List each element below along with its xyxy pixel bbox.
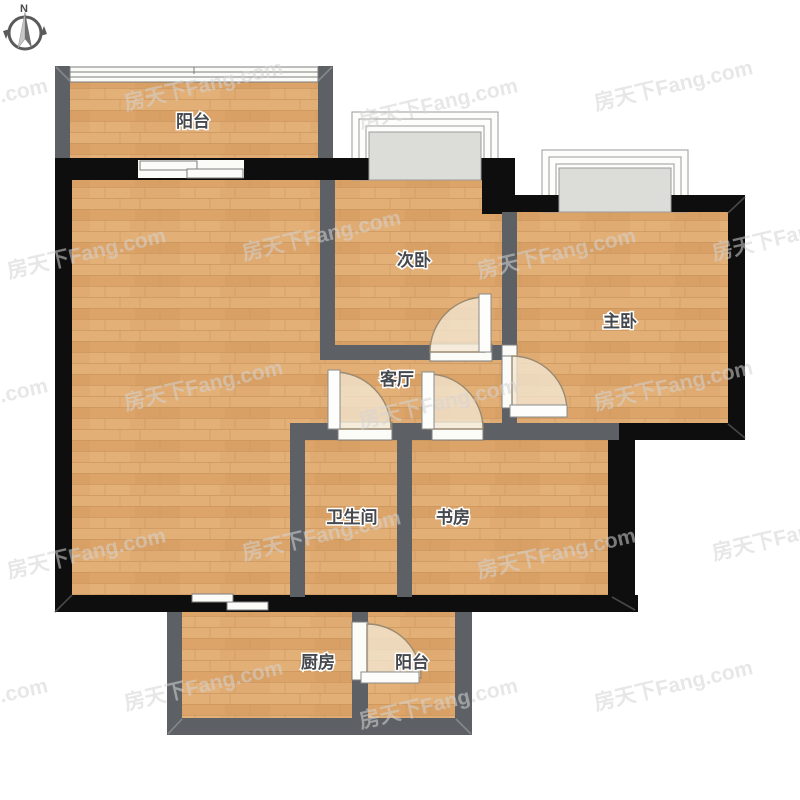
- door-leaf: [361, 672, 419, 683]
- room-label-balcony-top: 阳台: [176, 111, 210, 131]
- bay-window-panel: [559, 168, 671, 212]
- floorplan-canvas: 房天下Fang.com房天下Fang.com房天下Fang.com房天下Fang…: [0, 0, 800, 800]
- wall-segment: [617, 423, 745, 440]
- wall-segment: [167, 718, 472, 735]
- floorplan-page: 房天下Fang.com房天下Fang.com房天下Fang.com房天下Fang…: [0, 0, 800, 800]
- compass-north-label: N: [20, 3, 28, 15]
- sliding-window-panel: [192, 594, 233, 602]
- wall-segment: [502, 212, 517, 358]
- sliding-door-panel: [187, 169, 243, 178]
- sliding-window-panel: [227, 602, 268, 610]
- room-label-study: 书房: [436, 507, 470, 527]
- door-opening: [352, 622, 368, 680]
- watermark-text: 房天下Fang.com: [0, 373, 50, 433]
- wall-segment: [608, 423, 635, 612]
- wall-segment: [55, 158, 72, 612]
- door-leaf: [510, 405, 567, 417]
- room-label-balcony-bottom: 阳台: [395, 652, 429, 672]
- room-label-secondary-bedroom: 次卧: [397, 250, 431, 270]
- watermark-text: 房天下Fang.com: [710, 505, 800, 565]
- wall-segment: [502, 423, 619, 440]
- room-label-living-room: 客厅: [379, 369, 414, 389]
- door-leaf: [328, 370, 340, 429]
- room-label-master-bedroom: 主卧: [603, 311, 637, 331]
- compass: N: [3, 3, 47, 49]
- watermark-text: 房天下Fang.com: [0, 73, 50, 133]
- watermark-text: 房天下Fang.com: [592, 655, 755, 715]
- wall-segment: [55, 595, 638, 612]
- room-label-bathroom: 卫生间: [327, 507, 378, 527]
- watermark-text: 房天下Fang.com: [592, 55, 755, 115]
- wall-segment: [320, 180, 335, 360]
- wall-segment: [290, 423, 305, 597]
- wall-segment: [728, 195, 745, 440]
- room-label-kitchen: 厨房: [301, 652, 335, 672]
- door-jamb: [502, 345, 517, 356]
- watermark-text: 房天下Fang.com: [0, 673, 50, 733]
- door-leaf: [479, 294, 491, 352]
- bay-window-panel: [369, 132, 481, 180]
